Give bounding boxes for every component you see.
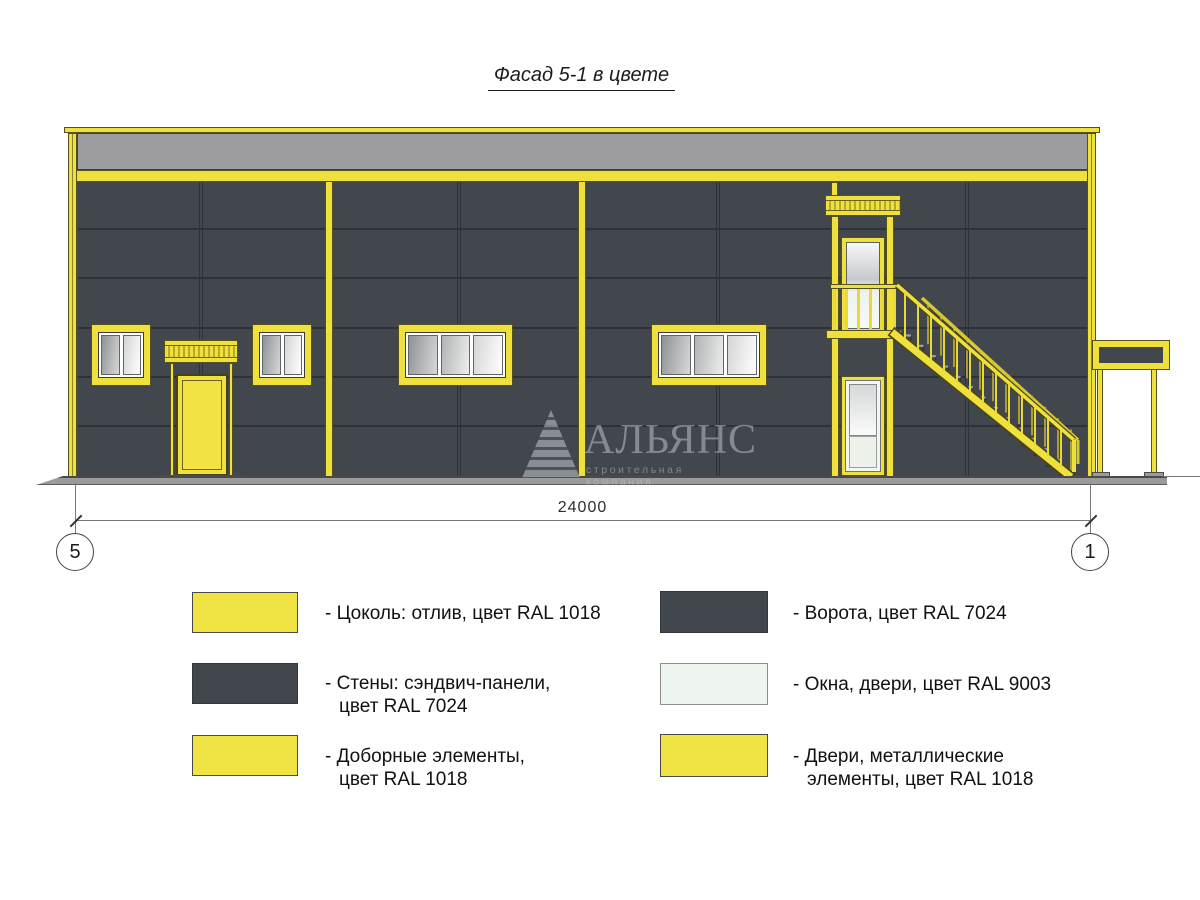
facade-title: Фасад 5-1 в цвете (488, 64, 675, 91)
legend-label: - Двери, металлические элементы, цвет RA… (793, 745, 1033, 791)
canopy-hatch (165, 345, 237, 358)
title-row: Фасад 5-1 в цвете (0, 64, 1163, 91)
corner-trim-left (68, 133, 77, 477)
window-pane (101, 335, 120, 375)
side-canopy-post-back (1151, 369, 1157, 473)
window-pane (123, 335, 142, 375)
window-pane (262, 335, 281, 375)
window-glazing (259, 332, 305, 378)
dimension-label: 24000 (75, 499, 1090, 517)
legend-label: - Ворота, цвет RAL 7024 (793, 602, 1007, 625)
entrance-door (176, 374, 228, 476)
axis-marker-left: 5 (56, 533, 94, 571)
window-glazing (658, 332, 760, 378)
window-second-2pane (252, 324, 312, 386)
ground-line-extension (1163, 476, 1200, 477)
window-right-3pane (651, 324, 767, 386)
side-canopy-fascia (1093, 341, 1169, 369)
tower-roof-connector (831, 182, 838, 196)
wall-trim-divider (325, 182, 333, 477)
exterior-staircase (810, 250, 1110, 482)
legend-label: - Цоколь: отлив, цвет RAL 1018 (325, 602, 601, 625)
canopy-hatch (826, 200, 900, 211)
window-glazing (98, 332, 144, 378)
window-pane (408, 335, 438, 375)
legend-swatch-yellow (192, 592, 298, 633)
legend-swatch-dark (660, 591, 768, 633)
legend-label: - Доборные элементы, цвет RAL 1018 (325, 745, 525, 791)
legend-swatch-light (660, 663, 768, 705)
legend-swatch-yellow (192, 735, 298, 776)
dim-extension-right (1090, 483, 1091, 533)
legend-swatch-yellow (660, 734, 768, 777)
legend-label: - Стены: сэндвич-панели, цвет RAL 7024 (325, 672, 550, 718)
legend-label: - Окна, двери, цвет RAL 9003 (793, 673, 1051, 696)
window-pane (441, 335, 471, 375)
side-canopy-post-front (1097, 369, 1103, 473)
eaves-band (68, 170, 1096, 182)
window-pane (727, 335, 757, 375)
window-glazing (405, 332, 506, 378)
window-pane (694, 335, 724, 375)
canopy-bottom-bar (826, 211, 900, 215)
entrance-door-canopy (164, 340, 238, 363)
window-middle-3pane (398, 324, 513, 386)
dimension-line (75, 520, 1091, 521)
window-pane (473, 335, 503, 375)
legend-swatch-dark (192, 663, 298, 704)
facade-drawing-sheet: Фасад 5-1 в цвете (0, 0, 1200, 900)
window-pane (284, 335, 303, 375)
ground-strip (36, 476, 1167, 485)
canopy-bottom-bar (165, 358, 237, 362)
stair-tower-canopy (825, 195, 901, 216)
door-canopy-post-right (229, 363, 233, 476)
entrance-door-leaf (182, 380, 222, 470)
axis-marker-right: 1 (1071, 533, 1109, 571)
wall-trim-divider (578, 182, 586, 477)
door-canopy-post-left (170, 363, 174, 476)
axis-label: 5 (69, 541, 80, 564)
axis-label: 1 (1084, 541, 1095, 564)
window-left-2pane (91, 324, 151, 386)
window-pane (661, 335, 691, 375)
parapet-band (77, 133, 1088, 170)
